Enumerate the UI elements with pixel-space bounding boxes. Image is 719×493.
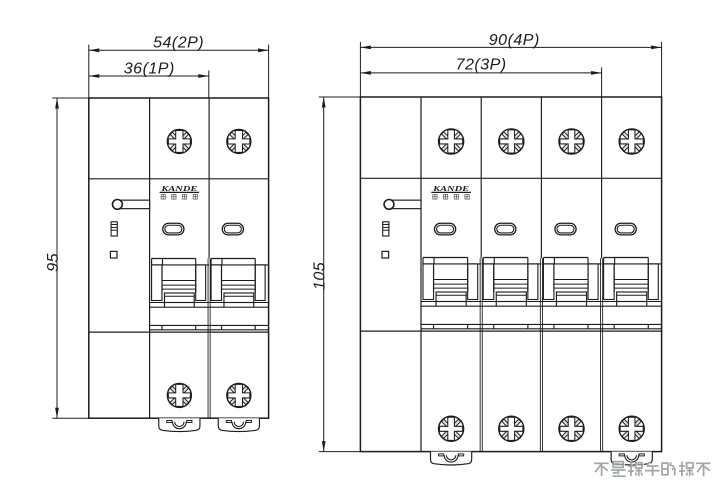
svg-text:90(4P): 90(4P) [489, 32, 540, 49]
svg-text:36(1P): 36(1P) [124, 60, 175, 77]
svg-text:95: 95 [45, 253, 62, 272]
svg-text:72(3P): 72(3P) [456, 56, 507, 73]
svg-text:105: 105 [312, 262, 329, 290]
svg-text:54(2P): 54(2P) [153, 34, 204, 51]
